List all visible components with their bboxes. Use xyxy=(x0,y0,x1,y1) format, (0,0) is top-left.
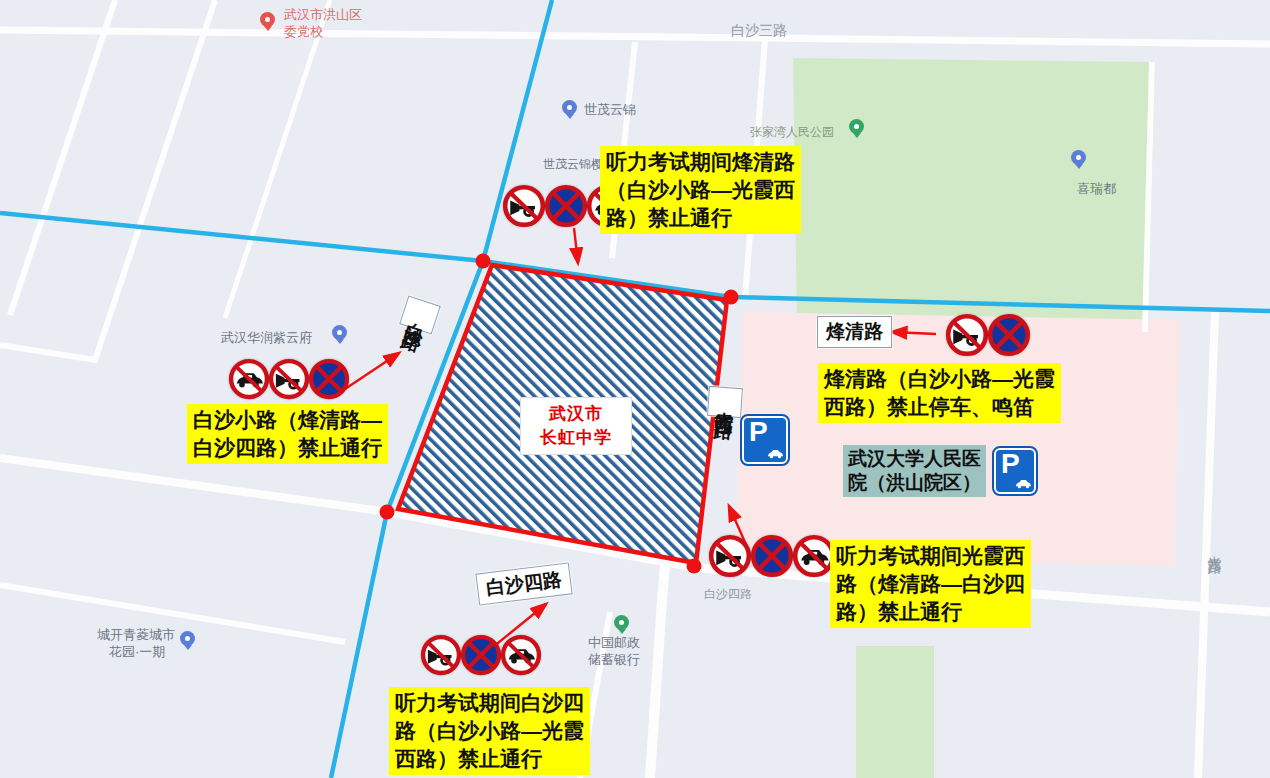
poi-party-school: 武汉市洪山区 委党校 xyxy=(284,6,362,40)
no-stopping-sign-icon xyxy=(544,184,588,228)
car-glyph-icon xyxy=(766,448,784,459)
annotation-line: 烽清路（白沙小路—光霞 xyxy=(824,365,1055,393)
annotation-line: 听力考试期间白沙四 xyxy=(395,689,584,717)
traffic-restriction-map[interactable]: 武汉市洪山区 委党校 世茂云锦 世茂云锦樱海园 张家湾人民公园 喜瑞都 武汉华润… xyxy=(0,0,1270,778)
school-line2: 长虹中学 xyxy=(521,426,631,450)
annotation-line: 路）禁止通行 xyxy=(836,598,1025,626)
poi-huarun: 武汉华润紫云府 xyxy=(221,329,312,346)
sign-group-guangxia-xilu xyxy=(708,534,834,578)
road-label-baisha3: 白沙三路 xyxy=(731,22,787,40)
no-horn-sign-icon xyxy=(268,358,310,400)
no-stopping-sign-icon xyxy=(460,634,502,676)
poi-zhangjiawan-park: 张家湾人民公园 xyxy=(750,124,834,141)
no-horn-sign-icon xyxy=(945,313,989,357)
no-stopping-sign-icon xyxy=(750,534,794,578)
roadbox-guangxia-xilu: 光霞西路 xyxy=(707,386,743,418)
annotation-line: 听力考试期间烽清路 xyxy=(606,148,795,176)
no-horn-sign-icon xyxy=(502,184,546,228)
annotation-baisha-silu-closed: 听力考试期间白沙四 路（白沙小路—光霞 西路）禁止通行 xyxy=(389,687,590,775)
sign-group-baisha-silu xyxy=(420,634,540,676)
poi-chengkai-line1: 城开青菱城市 xyxy=(97,626,175,643)
poi-chengkai-line2: 花园·一期 xyxy=(97,643,175,660)
annotation-line: 听力考试期间光霞西 xyxy=(836,542,1025,570)
annotation-line: 白沙四路）禁止通行 xyxy=(193,434,382,462)
no-horn-sign-icon xyxy=(420,634,462,676)
poi-postal-bank-line2: 储蓄银行 xyxy=(588,651,640,668)
hospital-label: 武汉大学人民医 院（洪山院区） xyxy=(843,445,986,497)
poi-postal-bank: 中国邮政 储蓄银行 xyxy=(588,634,640,668)
poi-chengkai: 城开青菱城市 花园·一期 xyxy=(97,626,175,660)
poi-postal-bank-line1: 中国邮政 xyxy=(588,634,640,651)
party-school-pin-icon xyxy=(260,12,275,27)
hospital-line1: 武汉大学人民医 xyxy=(848,447,981,471)
poi-xiruidu: 喜瑞都 xyxy=(1077,180,1116,197)
annotation-line: 西路）禁止停车、鸣笛 xyxy=(824,393,1055,421)
no-stopping-sign-icon xyxy=(308,358,350,400)
annotation-fengqing-noparking: 烽清路（白沙小路—光霞 西路）禁止停车、鸣笛 xyxy=(818,363,1061,423)
parking-letter: P xyxy=(1001,448,1020,480)
huarun-pin-icon xyxy=(332,325,347,340)
poi-party-school-line1: 武汉市洪山区 xyxy=(284,6,362,23)
annotation-line: （白沙小路—光霞西 xyxy=(606,176,795,204)
parking-sign-icon-road: P xyxy=(742,416,788,464)
school-label: 武汉市 长虹中学 xyxy=(520,397,632,455)
annotation-line: 西路）禁止通行 xyxy=(395,745,584,773)
park-pin-icon xyxy=(849,119,864,134)
poi-shimao: 世茂云锦 xyxy=(584,101,636,118)
sign-group-baisha-xiaolu xyxy=(228,358,348,400)
shimao-pin-icon xyxy=(562,100,577,115)
xiruidu-pin-icon xyxy=(1071,150,1086,165)
chengkai-pin-icon xyxy=(180,631,195,646)
car-glyph-icon xyxy=(1014,478,1032,489)
annotation-line: 白沙小路（烽清路— xyxy=(193,406,382,434)
annotation-line: 路（白沙小路—光霞 xyxy=(395,717,584,745)
no-stopping-sign-icon xyxy=(987,313,1031,357)
hospital-line2: 院（洪山院区） xyxy=(848,471,981,495)
roadbox-fengqing: 烽清路 xyxy=(817,316,892,348)
poi-party-school-line2: 委党校 xyxy=(284,23,362,40)
school-line1: 武汉市 xyxy=(521,402,631,426)
postal-bank-pin-icon xyxy=(614,615,629,630)
road-label-baisha4-small: 白沙四路 xyxy=(704,586,752,603)
annotation-fengqing-closed: 听力考试期间烽清路 （白沙小路—光霞西 路）禁止通行 xyxy=(600,146,801,234)
road-label-guangxia: 光霞路 xyxy=(1206,545,1224,551)
green-strip-area xyxy=(856,646,934,778)
no-horn-sign-icon xyxy=(708,534,752,578)
no-car-sign-icon xyxy=(500,634,542,676)
annotation-line: 路（烽清路—白沙四 xyxy=(836,570,1025,598)
no-car-sign-icon xyxy=(228,358,270,400)
annotation-baisha-xiaolu-closed: 白沙小路（烽清路— 白沙四路）禁止通行 xyxy=(187,404,388,464)
parking-letter-2: P xyxy=(749,416,768,448)
parking-sign-icon: P xyxy=(994,448,1036,494)
annotation-line: 路）禁止通行 xyxy=(606,204,795,232)
annotation-guangxia-closed: 听力考试期间光霞西 路（烽清路—白沙四 路）禁止通行 xyxy=(830,540,1031,628)
sign-group-fengqing-right xyxy=(945,313,1029,357)
